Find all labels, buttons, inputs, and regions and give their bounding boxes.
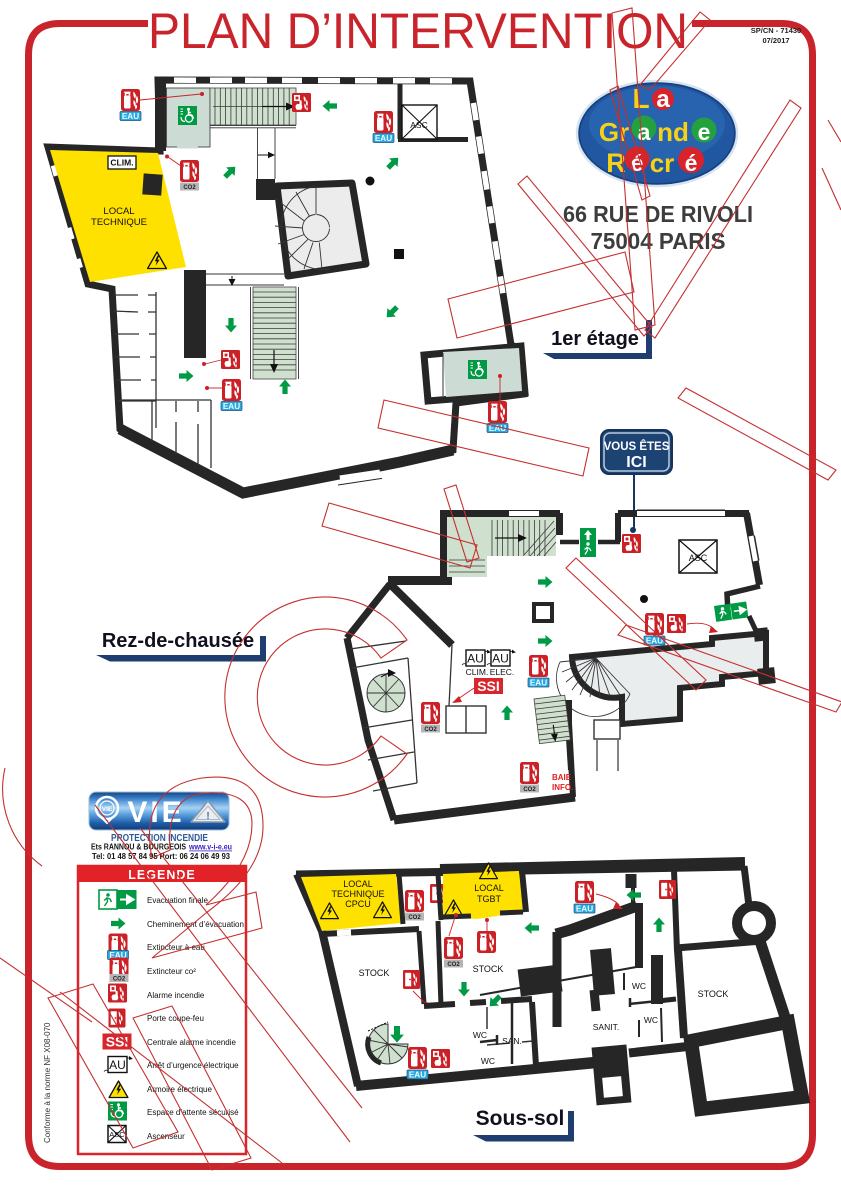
svg-text:LOCAL: LOCAL <box>103 206 134 217</box>
svg-text:Armoire électrique: Armoire électrique <box>147 1085 212 1094</box>
svg-text:VIE: VIE <box>127 796 184 829</box>
svg-text:Rez-de-chausée: Rez-de-chausée <box>102 630 254 652</box>
svg-text:VIE: VIE <box>102 806 113 813</box>
svg-text:a: a <box>656 86 670 113</box>
svg-text:é: é <box>631 150 644 176</box>
svg-text:Alarme incendie: Alarme incendie <box>147 991 205 1000</box>
svg-text:Arrêt d’urgence électrique: Arrêt d’urgence électrique <box>147 1061 239 1070</box>
svg-text:Tel: 01 48 57 84 95 Port: 06: Tel: 01 48 57 84 95 Port: 06 24 06 49 93 <box>92 851 230 861</box>
svg-text:LEGENDE: LEGENDE <box>128 868 195 882</box>
svg-text:SP/CN - 71430: SP/CN - 71430 <box>751 26 801 35</box>
svg-text:WC: WC <box>632 981 646 991</box>
svg-text:a: a <box>638 119 651 145</box>
svg-text:WC: WC <box>473 1030 487 1040</box>
svg-text:CLIM.: CLIM. <box>466 667 489 677</box>
svg-text:Porte coupe-feu: Porte coupe-feu <box>147 1014 204 1023</box>
svg-text:75004 PARIS: 75004 PARIS <box>591 228 726 254</box>
svg-text:ASC: ASC <box>109 1130 125 1139</box>
svg-text:ICI: ICI <box>626 454 646 471</box>
svg-text:é: é <box>685 150 698 176</box>
svg-text:TECHNIQUE: TECHNIQUE <box>331 889 384 899</box>
svg-text:e: e <box>698 119 711 145</box>
svg-text:STOCK: STOCK <box>473 964 504 974</box>
svg-text:WC: WC <box>644 1015 658 1025</box>
svg-text:Centrale alarme incendie: Centrale alarme incendie <box>147 1038 236 1047</box>
svg-text:STOCK: STOCK <box>698 989 729 999</box>
svg-text:CPCU: CPCU <box>345 899 371 909</box>
svg-text:WC: WC <box>481 1056 495 1066</box>
svg-text:L: L <box>632 83 649 114</box>
svg-text:TECHNIQUE: TECHNIQUE <box>91 217 147 228</box>
svg-text:ASC: ASC <box>410 120 427 130</box>
svg-text:STOCK: STOCK <box>359 968 390 978</box>
svg-text:ASC: ASC <box>689 553 708 563</box>
svg-text:LOCAL: LOCAL <box>343 879 373 889</box>
svg-text:LOCAL: LOCAL <box>474 883 504 893</box>
svg-text:INFO.: INFO. <box>552 783 573 792</box>
svg-text:Evacuation finale: Evacuation finale <box>147 896 208 905</box>
svg-text:Gr: Gr <box>599 117 629 147</box>
svg-text:Extincteur co²: Extincteur co² <box>147 967 196 976</box>
svg-text:SANIT.: SANIT. <box>593 1022 619 1032</box>
svg-text:TGBT: TGBT <box>477 894 502 904</box>
svg-text:Extincteur à eau: Extincteur à eau <box>147 943 205 952</box>
svg-text:CLIM.: CLIM. <box>110 158 133 168</box>
svg-text:ELEC.: ELEC. <box>490 667 515 677</box>
svg-text:BAIE: BAIE <box>552 773 572 782</box>
svg-text:!: ! <box>206 811 209 822</box>
svg-text:cr: cr <box>650 148 675 178</box>
svg-text:Conforme à la norme NF X08-070: Conforme à la norme NF X08-070 <box>43 1022 52 1143</box>
svg-text:07/2017: 07/2017 <box>762 36 789 45</box>
svg-text:PLAN D’INTERVENTION: PLAN D’INTERVENTION <box>148 3 688 59</box>
svg-text:Sous-sol: Sous-sol <box>476 1107 565 1130</box>
svg-text:nd: nd <box>657 117 689 147</box>
svg-text:VOUS ÊTES: VOUS ÊTES <box>604 440 670 453</box>
svg-text:1er étage: 1er étage <box>551 328 639 350</box>
